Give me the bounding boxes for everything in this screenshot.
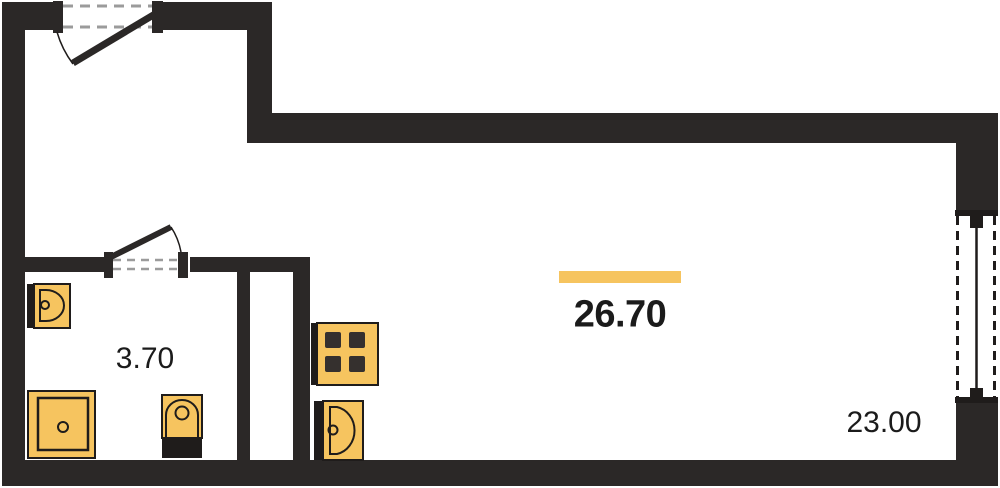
- living-area-label: 23.00: [846, 406, 921, 440]
- wall-bottom: [2, 460, 998, 486]
- bathroom-door: [104, 227, 188, 278]
- window-mullion-bottom: [970, 388, 983, 400]
- kitchen-sink-mount-strip: [314, 401, 323, 460]
- entrance-door-leaf: [73, 14, 155, 63]
- entrance-door: [53, 1, 163, 64]
- wall-bathroom-top-b: [190, 257, 310, 272]
- stove-burner-3: [325, 356, 341, 372]
- wall-top-left-b: [163, 2, 272, 30]
- kitchen-sink-icon: [314, 401, 363, 460]
- stove-burner-1: [325, 332, 341, 348]
- wall-shaft-right: [293, 258, 310, 460]
- wall-bathroom-top-a: [25, 257, 105, 272]
- window: [955, 210, 998, 403]
- wall-top-left-a: [2, 2, 55, 30]
- entrance-door-swing-arc: [57, 32, 73, 64]
- total-area-label: 26.70: [574, 294, 667, 337]
- washbasin-mount-strip: [27, 284, 34, 328]
- stove-burner-2: [349, 332, 365, 348]
- bathroom-door-swing-arc: [171, 227, 181, 252]
- stove-icon: [311, 323, 378, 385]
- shower-icon: [28, 391, 95, 458]
- washbasin-icon: [27, 284, 70, 328]
- toilet-tank: [162, 437, 202, 458]
- toilet-icon: [162, 395, 202, 458]
- stove-burner-4: [349, 356, 365, 372]
- toilet-base: [162, 395, 202, 438]
- wall-bathroom-right: [237, 272, 250, 460]
- wall-left: [2, 2, 25, 486]
- window-mullion-top: [970, 216, 983, 228]
- wall-top-right: [247, 113, 998, 143]
- window-cap-top: [955, 210, 998, 216]
- total-area-accent-bar: [559, 271, 681, 283]
- bathroom-area-label: 3.70: [116, 342, 174, 376]
- floor-plan: 26.70 3.70 23.00: [0, 0, 1000, 488]
- wall-right-upper: [956, 143, 998, 211]
- bathroom-door-leaf: [111, 227, 171, 257]
- entrance-door-post-left: [53, 1, 63, 33]
- bathroom-door-post-right: [178, 252, 188, 278]
